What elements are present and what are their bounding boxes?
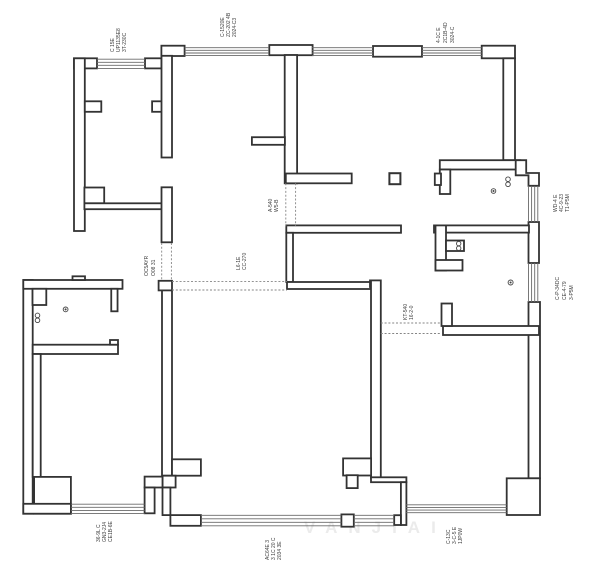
svg-text:OC5AYR: OC5AYR [144,255,150,276]
svg-text:C-P-34DC: C-P-34DC [555,277,561,300]
svg-text:CE-4-79: CE-4-79 [562,281,568,300]
svg-text:2C1B-4D: 2C1B-4D [443,22,449,43]
svg-text:2034 3E: 2034 3E [277,541,283,560]
svg-text:3-P5M: 3-P5M [569,285,575,300]
svg-text:2024-C3: 2024-C3 [232,18,238,37]
svg-text:CE1B-6E: CE1B-6E [108,520,114,542]
svg-text:4-1C E: 4-1C E [436,27,442,43]
svg-text:CC-270: CC-270 [242,253,248,270]
svg-text:VANJIAI: VANJIAI [304,518,447,537]
svg-text:1JP0W: 1JP0W [458,528,464,544]
svg-text:T1-P5M: T1-P5M [565,194,571,212]
svg-text:O08 31: O08 31 [151,259,157,276]
svg-text:3T-230C: 3T-230C [122,32,128,52]
svg-text:16-2-0: 16-2-0 [409,305,415,320]
svg-text:W5-B: W5-B [274,199,280,212]
svg-text:3024-C: 3024-C [450,26,456,43]
